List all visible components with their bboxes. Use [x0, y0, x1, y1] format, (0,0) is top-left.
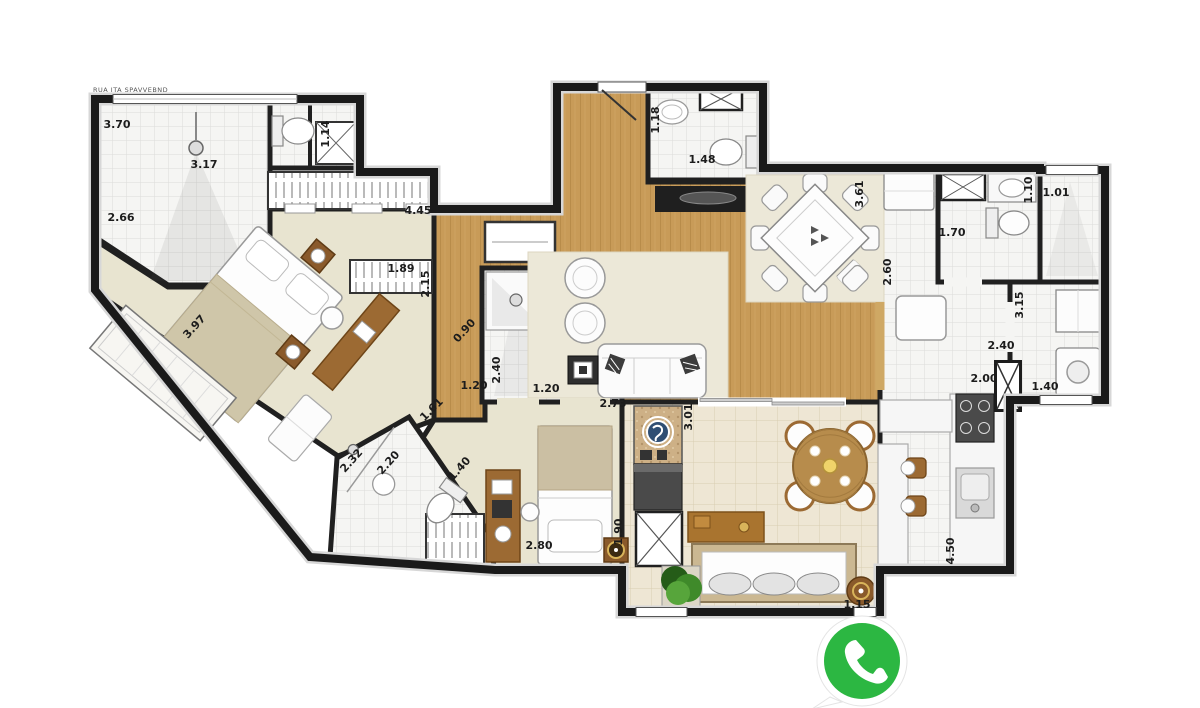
entry-door-opening: [598, 82, 646, 92]
sideboard: [688, 512, 764, 542]
dimension-label: 3.15: [1013, 291, 1026, 318]
balcony-rail-gap: [636, 608, 687, 617]
side-table: [568, 356, 598, 384]
door-opening: [876, 302, 885, 390]
dimension-label: 2.73: [599, 397, 626, 410]
dimension-label: 2.80: [525, 539, 552, 552]
whatsapp-green-circle: [824, 623, 900, 699]
balcony-bench: [692, 544, 856, 602]
laundry-cabinet: [1056, 290, 1100, 332]
header-note: RUA ITA SPAVVEBND: [93, 86, 168, 94]
grill-counter: [634, 464, 682, 510]
desk-stool: [521, 503, 539, 521]
dimension-label: 1.40: [1031, 380, 1058, 393]
toilet: [272, 116, 314, 146]
dimension-label: 4.50: [944, 537, 957, 564]
dimension-label: 1.14: [319, 120, 332, 147]
dimension-label: 1.18: [649, 106, 662, 133]
console-table: [655, 186, 761, 212]
door-opening: [497, 398, 539, 406]
dimension-label: 2.40: [490, 356, 503, 383]
duct-shaft: [636, 512, 682, 566]
window: [1046, 166, 1098, 175]
floor-plan-page: 3.70 3.17 2.66 1.14 4.45 1.89 2.15 3.97 …: [0, 0, 1200, 708]
potted-plant: [661, 566, 702, 606]
dimension-label: 1.20: [460, 379, 487, 392]
armchair: [565, 258, 605, 298]
kitchen-sink: [956, 468, 994, 518]
dimension-label: 3.17: [190, 158, 217, 171]
refrigerator: [884, 172, 934, 210]
dimension-label: 2.40: [987, 339, 1014, 352]
window: [113, 95, 297, 104]
dimension-label: 3.61: [853, 180, 866, 207]
floor-plan: 3.70 3.17 2.66 1.14 4.45 1.89 2.15 3.97 …: [0, 0, 1200, 708]
dimension-label: 2.15: [419, 270, 432, 297]
kitchen-table: [896, 296, 946, 340]
desk-chair: [321, 307, 343, 329]
door-opening: [944, 278, 982, 287]
dimension-label: 1.15: [843, 598, 870, 611]
dimension-label: 2.00: [970, 372, 997, 385]
dimension-label: 3.01: [682, 403, 695, 430]
dimension-label: 2.60: [881, 258, 894, 285]
dimension-label: 1.90: [612, 518, 625, 545]
sofa: [598, 344, 706, 398]
stove: [956, 394, 994, 442]
dimension-label: 3.70: [103, 118, 130, 131]
washing-machine: [1056, 348, 1100, 396]
barbecue-grill: [634, 406, 682, 464]
toilet: [986, 208, 1029, 238]
dimension-label: 2.66: [107, 211, 134, 224]
whatsapp-button[interactable]: [812, 616, 907, 708]
balcony-sliding-door: [698, 398, 846, 407]
dimension-label: 1.48: [688, 153, 715, 166]
toilet: [710, 136, 758, 168]
door-opening: [1040, 396, 1092, 405]
dimension-label: 1.89: [387, 262, 414, 275]
dimension-label: 1.10: [1022, 176, 1035, 203]
desk-bedroom2: [486, 470, 520, 562]
armchair: [565, 303, 605, 343]
dimension-label: 4.45: [404, 204, 431, 217]
dimension-label: 1.01: [1042, 186, 1069, 199]
balcony-round-table: [786, 422, 874, 510]
vent-shaft: [941, 174, 985, 200]
dimension-label: 1.70: [938, 226, 965, 239]
dimension-label: 1.20: [532, 382, 559, 395]
